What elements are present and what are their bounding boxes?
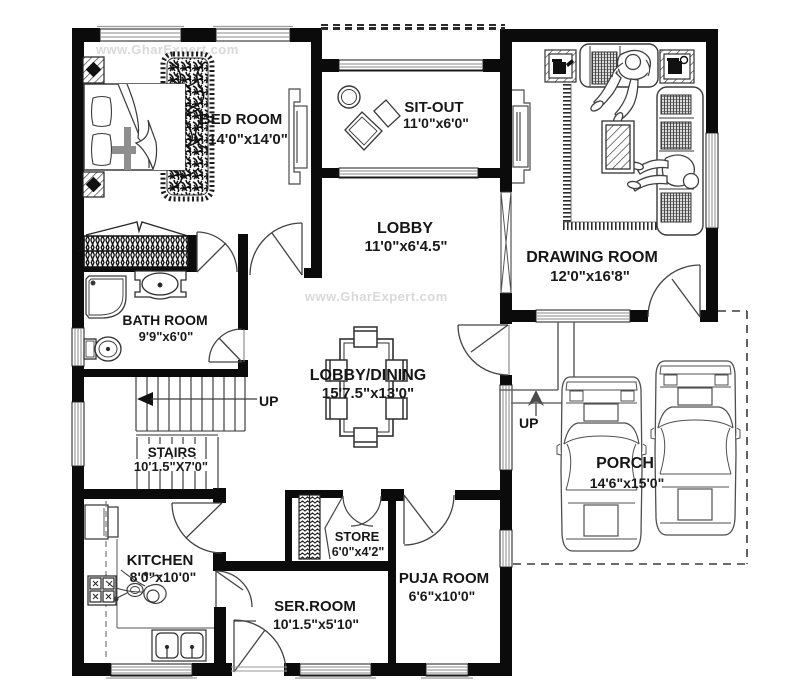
svg-text:10'1.5"x5'10": 10'1.5"x5'10" — [273, 616, 359, 632]
svg-text:KITCHEN: KITCHEN — [127, 552, 194, 569]
svg-text:10'1.5"X7'0": 10'1.5"X7'0" — [134, 459, 208, 474]
svg-text:12'0"x16'8": 12'0"x16'8" — [550, 268, 630, 285]
svg-text:SIT-OUT: SIT-OUT — [404, 99, 463, 116]
svg-text:STAIRS: STAIRS — [148, 445, 197, 460]
svg-text:BATH ROOM: BATH ROOM — [122, 312, 207, 328]
svg-text:PUJA ROOM: PUJA ROOM — [399, 570, 489, 587]
svg-text:6'6"x10'0": 6'6"x10'0" — [409, 588, 476, 604]
svg-text:14'0"x14'0": 14'0"x14'0" — [208, 131, 288, 148]
svg-text:14'6"x15'0": 14'6"x15'0" — [590, 475, 664, 491]
svg-text:8'0"x10'0": 8'0"x10'0" — [130, 569, 197, 585]
svg-text:UP: UP — [519, 415, 538, 431]
svg-text:www.GharExpert.com: www.GharExpert.com — [304, 289, 448, 304]
svg-text:LOBBY: LOBBY — [377, 220, 433, 237]
svg-text:9'9"x6'0": 9'9"x6'0" — [139, 329, 194, 344]
svg-text:11'0"x6'4.5": 11'0"x6'4.5" — [364, 238, 447, 255]
svg-text:11'0"x6'0": 11'0"x6'0" — [403, 115, 469, 131]
svg-text:LOBBY/DINING: LOBBY/DINING — [310, 367, 426, 384]
svg-text:DRAWING ROOM: DRAWING ROOM — [526, 249, 658, 266]
svg-text:UP: UP — [259, 393, 278, 409]
svg-text:BED ROOM: BED ROOM — [200, 111, 283, 128]
svg-text:PORCH: PORCH — [596, 455, 654, 472]
svg-text:6'0"x4'2": 6'0"x4'2" — [332, 545, 385, 559]
svg-text:15'7.5"x13'0": 15'7.5"x13'0" — [322, 385, 414, 402]
svg-text:STORE: STORE — [335, 529, 380, 544]
svg-text:SER.ROOM: SER.ROOM — [274, 598, 356, 615]
